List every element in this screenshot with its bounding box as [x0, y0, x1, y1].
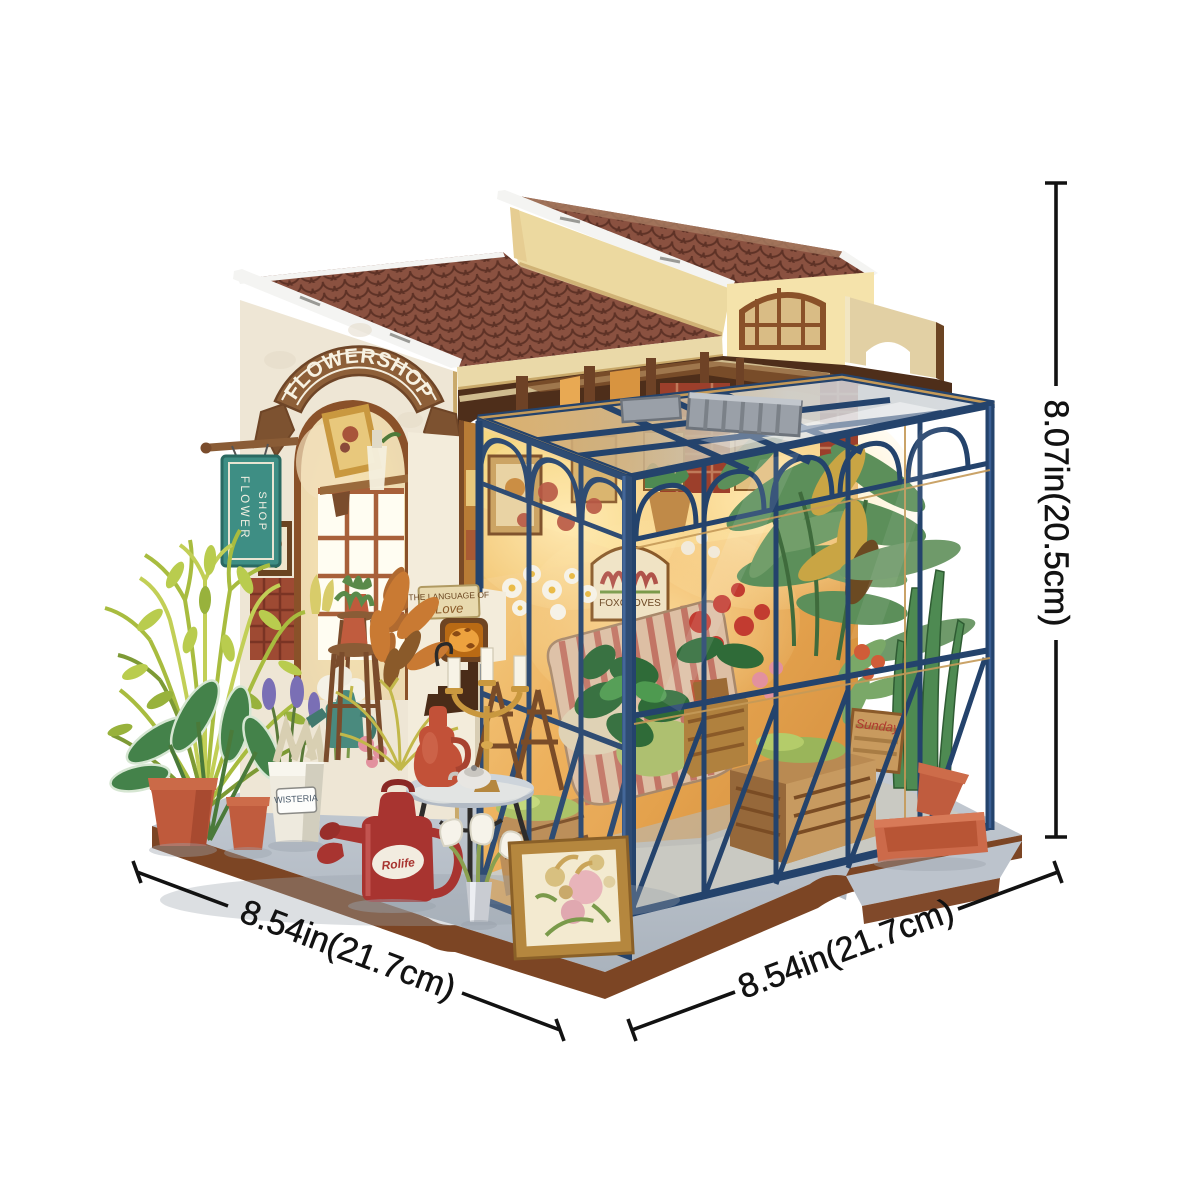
svg-text:8.07in(20.5cm): 8.07in(20.5cm) — [1037, 400, 1075, 627]
svg-text:Love: Love — [435, 601, 464, 617]
svg-text:SHOP: SHOP — [256, 491, 268, 532]
